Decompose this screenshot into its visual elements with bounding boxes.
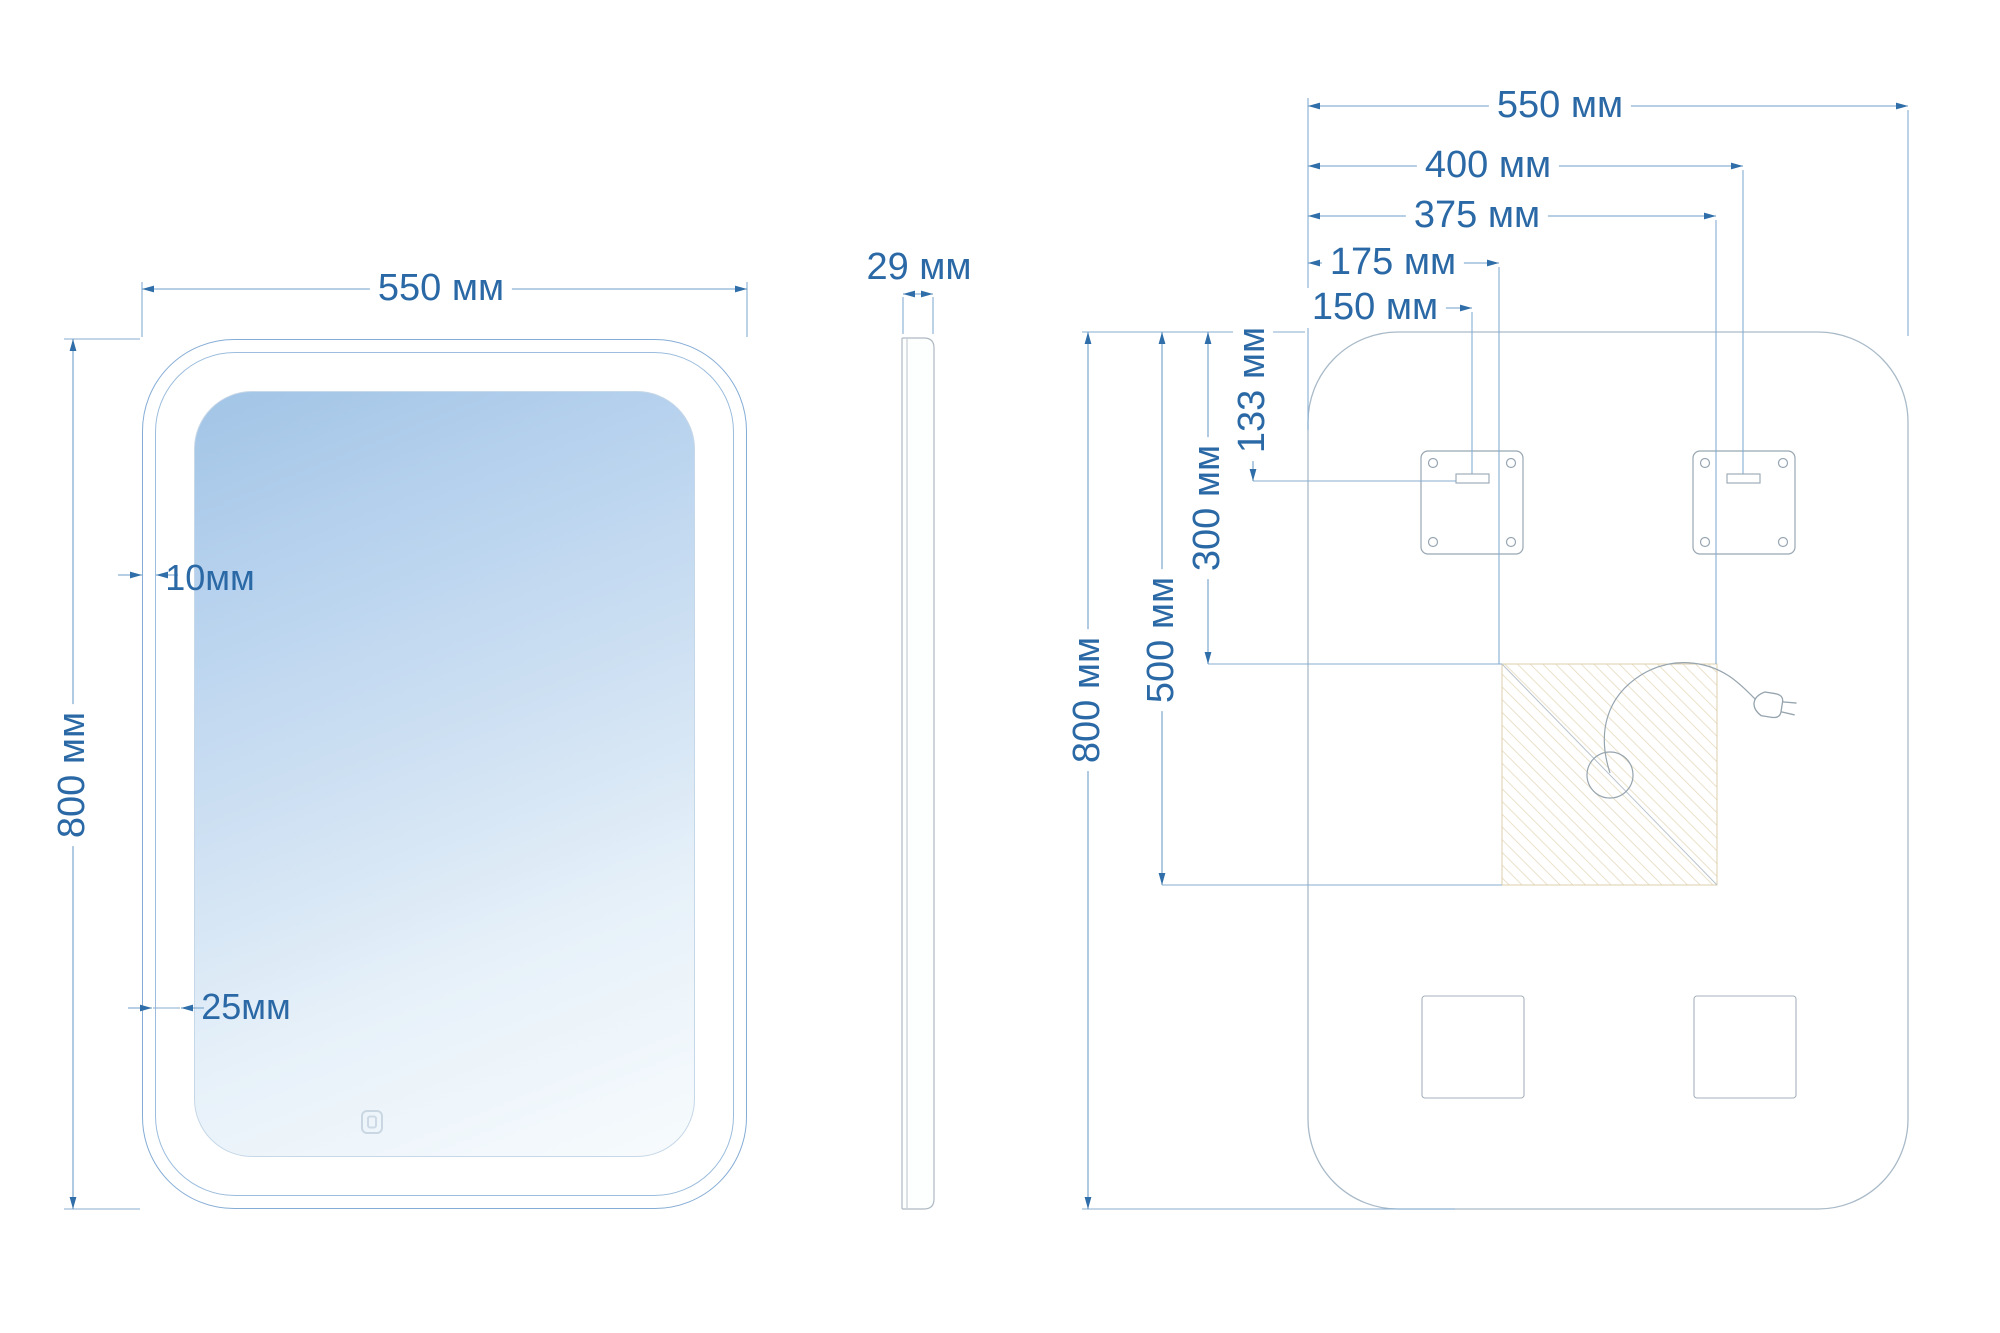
technical-drawing-canvas: 550 мм 800 мм 10мм 25мм 29 мм 550 мм 400… bbox=[0, 0, 2000, 1333]
side-view-profile bbox=[902, 338, 934, 1209]
bottom-pad-left bbox=[1422, 996, 1524, 1098]
back-left-mount-label: 150 мм bbox=[1304, 288, 1446, 328]
back-right-mount-label: 400 мм bbox=[1417, 146, 1559, 186]
keyhole-slot-right bbox=[1727, 474, 1760, 483]
frame-gap-label: 25мм bbox=[201, 988, 291, 1026]
back-zone-bottom-label: 500 мм bbox=[1142, 569, 1182, 711]
back-top-dimensions bbox=[1308, 98, 1908, 664]
back-zone-left-label: 175 мм bbox=[1322, 243, 1464, 283]
power-plug-icon bbox=[1752, 691, 1797, 721]
back-height-label: 800 мм bbox=[1068, 629, 1108, 771]
back-mount-drop-label: 133 мм bbox=[1233, 319, 1273, 461]
back-zone-top-label: 300 мм bbox=[1188, 437, 1228, 579]
front-height-label: 800 мм bbox=[53, 704, 93, 846]
back-zone-right-label: 375 мм bbox=[1406, 196, 1548, 236]
driver-zone-hatch bbox=[1502, 664, 1717, 885]
front-width-label: 550 мм bbox=[370, 269, 512, 309]
keyhole-slot-left bbox=[1456, 474, 1489, 483]
bottom-pad-right bbox=[1694, 996, 1796, 1098]
mounting-plate-right bbox=[1693, 451, 1795, 554]
side-thickness-label: 29 мм bbox=[866, 248, 971, 288]
led-band-width-label: 10мм bbox=[165, 559, 255, 597]
side-thickness-dimension bbox=[903, 294, 933, 334]
drawing-linework bbox=[0, 0, 2000, 1333]
back-width-label: 550 мм bbox=[1489, 86, 1631, 126]
